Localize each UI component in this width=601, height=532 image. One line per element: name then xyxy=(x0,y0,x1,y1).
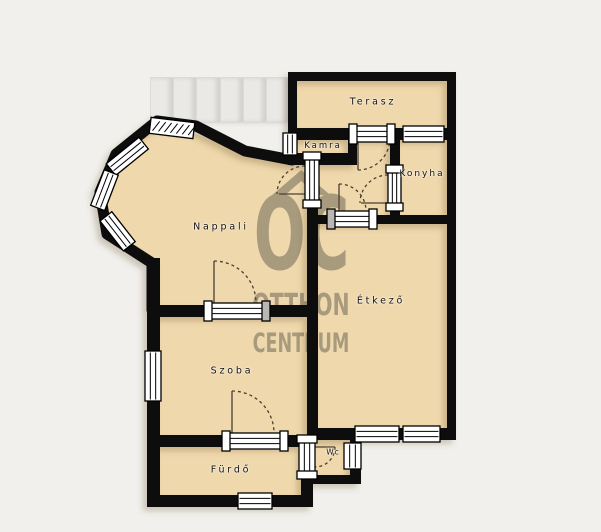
terasz-door-opening xyxy=(349,124,395,144)
door-swing-arc xyxy=(277,166,305,194)
etkezo-window-2 xyxy=(403,426,440,442)
walls-layer xyxy=(0,0,601,532)
wall xyxy=(447,72,456,440)
door-swing-arc xyxy=(214,261,256,303)
door-swing-arc xyxy=(339,184,366,211)
room-label-etkezo: Étkező xyxy=(357,296,405,307)
furdo-wc-door-opening xyxy=(297,435,317,479)
room-label-furdo: Fürdő xyxy=(211,465,252,476)
room-label-nappali: Nappali xyxy=(193,222,249,233)
floorplan-canvas: OC OTTHON CENTRUM xyxy=(0,0,601,532)
bay-window-2 xyxy=(91,170,119,211)
room-label-konyha: Konyha xyxy=(399,169,444,179)
room-label-terasz: Terasz xyxy=(350,97,397,108)
door-swing-arc xyxy=(358,138,390,170)
szoba-furdo-door-opening xyxy=(222,431,288,451)
room-label-szoba: Szoba xyxy=(211,366,254,377)
windows-and-doors xyxy=(91,117,444,509)
wall xyxy=(288,72,456,81)
door-swing-arc xyxy=(232,391,274,433)
wall xyxy=(147,495,313,507)
room-label-wc: Wc xyxy=(326,448,340,457)
wall xyxy=(288,153,357,165)
kamra-window xyxy=(283,133,297,155)
hall-nappali-door-opening xyxy=(303,152,321,208)
furdo-window xyxy=(238,493,272,509)
wc-window xyxy=(344,443,361,469)
room-label-kamra: Kamra xyxy=(304,141,342,151)
etkezo-window-1 xyxy=(355,426,399,442)
konyha-window xyxy=(403,126,444,142)
hall-etkezo-door-opening xyxy=(327,209,377,229)
nappali-szoba-door-opening xyxy=(204,301,270,321)
door-swing-arc xyxy=(360,175,388,203)
szoba-window xyxy=(145,351,161,401)
